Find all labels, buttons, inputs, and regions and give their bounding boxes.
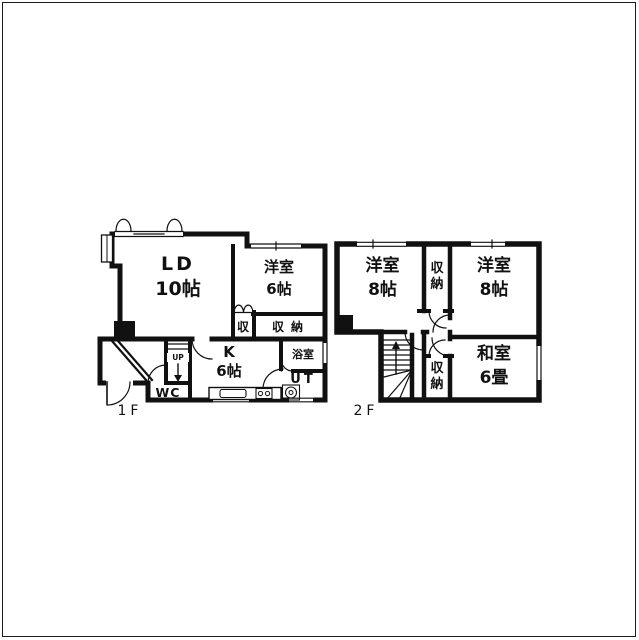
stairs-1f [166, 344, 190, 382]
stairs-1f-arrow-head [174, 375, 182, 382]
yoshitsu8-left-size: 8帖 [341, 278, 424, 302]
room-label-yoshitsu8-right: 洋室 8帖 [452, 254, 536, 302]
room-label-ld: LD 10帖 [130, 252, 226, 302]
washitsu-name: 和室 [452, 342, 536, 366]
closet-top-label: 収納 [430, 261, 444, 293]
kitchen-name: K [188, 343, 270, 362]
stairs-up-label: UP [167, 353, 189, 362]
yoshitsu8-right-name: 洋室 [452, 254, 536, 278]
room-label-washitsu: 和室 6畳 [452, 342, 536, 390]
room-label-yoshitsu8-left: 洋室 8帖 [341, 254, 424, 302]
floorplan-canvas: LD 10帖 洋室 6帖 収 収納 K 6帖 浴室 UT WC UP 1F 洋室… [0, 0, 639, 640]
balcony-door-swing-arcs [116, 219, 182, 231]
closet-bifold-doors [233, 305, 253, 312]
toilet-label: WC [150, 385, 186, 400]
room-label-yoshitsu6: 洋室 6帖 [237, 256, 321, 300]
floor1-label: 1F [109, 403, 151, 419]
closet-small-label: 収 [233, 318, 253, 335]
yoshitsu-right-door-arc [433, 315, 450, 332]
room-label-kitchen: K 6帖 [188, 343, 270, 381]
ld-name: LD [130, 252, 226, 277]
yoshitsu6-name: 洋室 [237, 256, 321, 278]
front-door-gap [106, 380, 133, 387]
entry-step-lines [112, 341, 152, 380]
yoshitsu6-size: 6帖 [237, 278, 321, 300]
wall-pillar [114, 321, 135, 339]
wall-pillar-2f [337, 315, 353, 332]
floor2-label: 2F [344, 403, 388, 419]
washitsu-size: 6畳 [452, 366, 536, 390]
closet-label-1f: 収納 [258, 318, 324, 335]
closet-bottom-door-arc [429, 340, 445, 356]
bath-label: 浴室 [284, 346, 322, 362]
wc-door-arc [148, 365, 166, 383]
closet-top-door-arc [429, 311, 446, 328]
kitchen-size: 6帖 [188, 362, 270, 381]
utility-label: UT [286, 372, 320, 387]
closet-bottom-label: 収納 [430, 361, 444, 393]
stairs-2f [384, 340, 412, 400]
ld-size: 10帖 [130, 277, 226, 302]
stairs-2f-winders [384, 370, 412, 400]
kitchen-counter [209, 388, 281, 400]
yoshitsu8-right-size: 8帖 [452, 278, 536, 302]
yoshitsu8-left-name: 洋室 [341, 254, 424, 278]
